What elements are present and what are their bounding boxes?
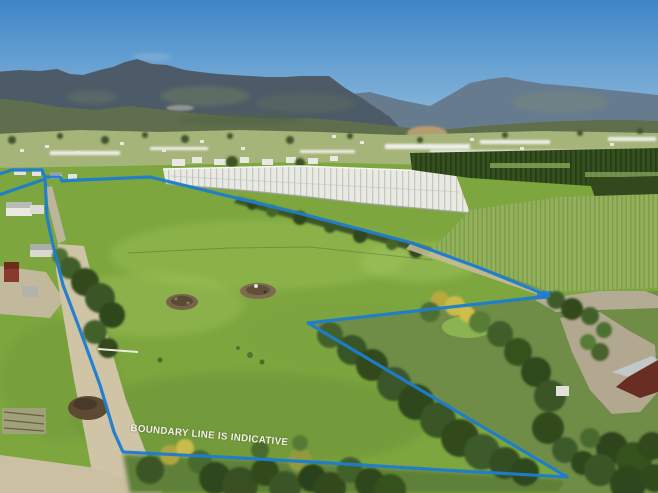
brush-pile-2 bbox=[240, 283, 276, 299]
scene-svg bbox=[0, 0, 658, 493]
white-shed bbox=[556, 386, 569, 396]
stock-yards bbox=[2, 408, 46, 434]
aerial-property-photo: BOUNDARY LINE IS INDICATIVE bbox=[0, 0, 658, 493]
mountain-clearing bbox=[160, 86, 250, 106]
brush-pile-1 bbox=[166, 294, 198, 310]
